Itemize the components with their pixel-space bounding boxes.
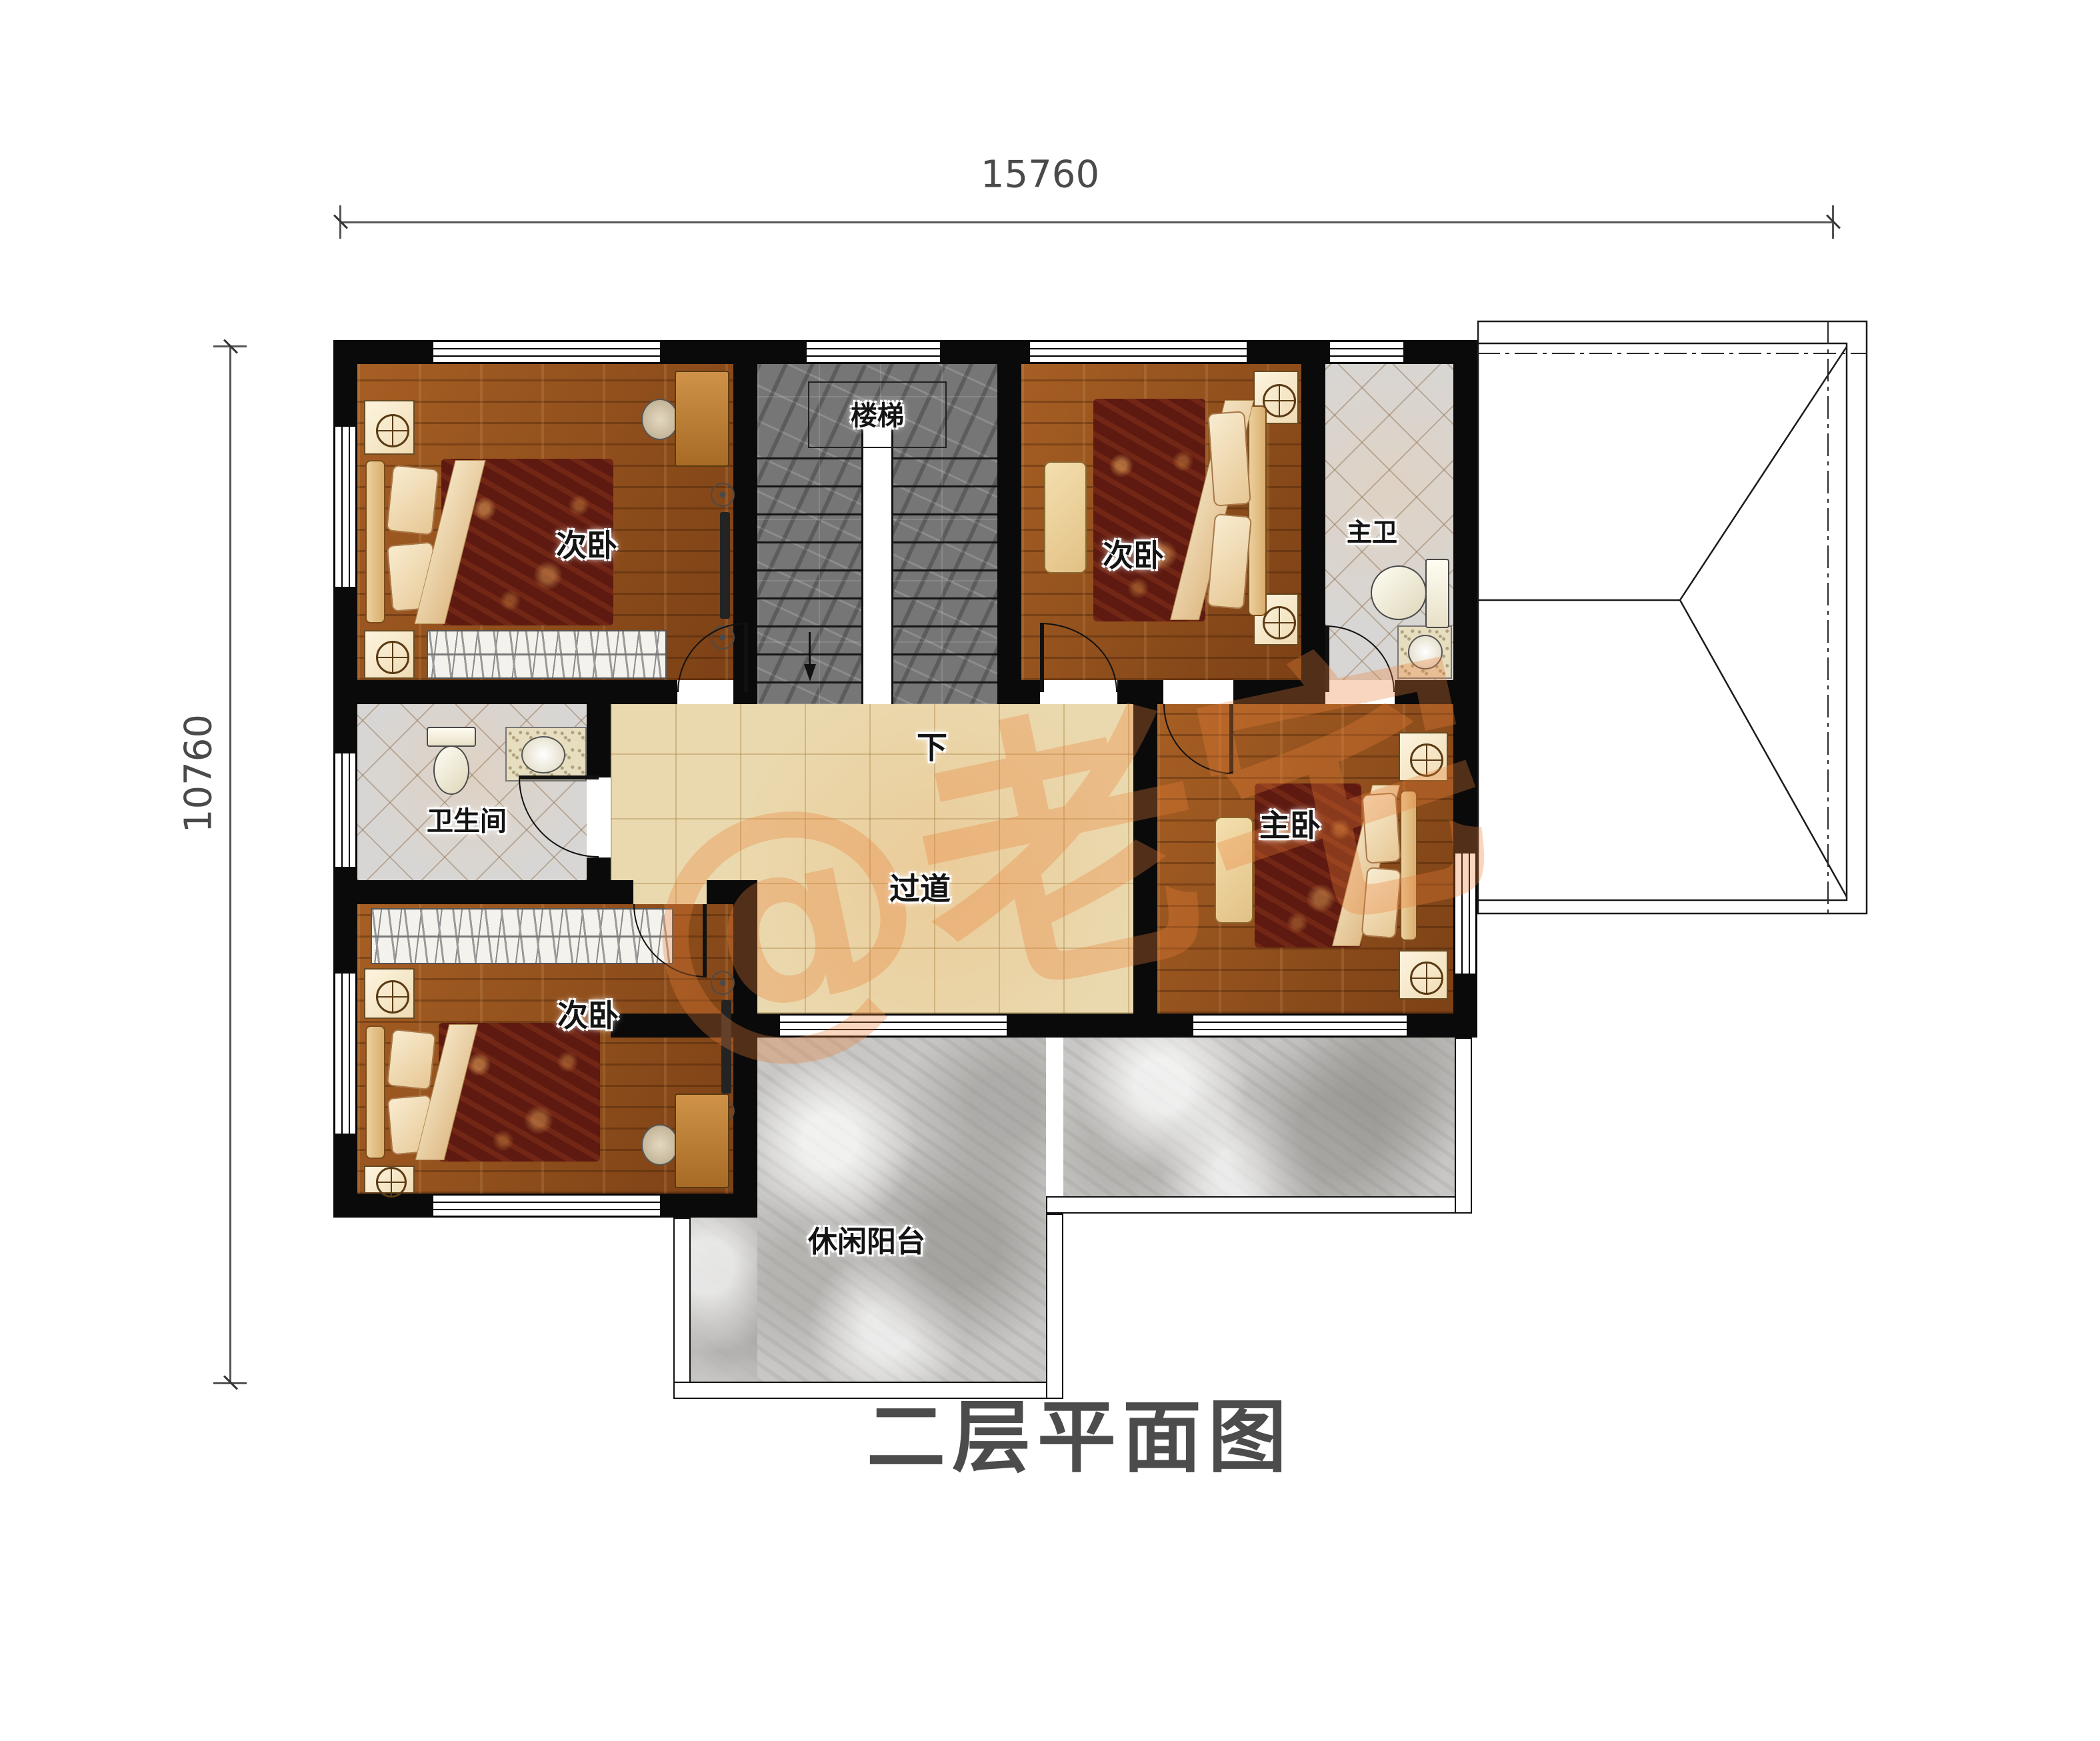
window [433, 1194, 660, 1218]
wardrobe [371, 908, 673, 964]
room-label-master-bath: 主卫 [1347, 512, 1397, 549]
window [333, 427, 357, 587]
floor-balcony-left [757, 1038, 1046, 1382]
door-leaf [519, 775, 599, 779]
chair [641, 399, 679, 440]
stair-down-arrow-tail [809, 632, 811, 664]
wall [333, 880, 633, 904]
sink [1408, 635, 1443, 669]
sink [521, 736, 565, 773]
bed-headboard [1248, 405, 1267, 616]
bedroom-bench [1044, 461, 1087, 573]
nightstand [1399, 732, 1448, 781]
wall [587, 704, 611, 777]
bed-pillow [387, 1029, 437, 1090]
speaker-knob [711, 971, 735, 995]
wall [997, 340, 1021, 704]
wall [707, 880, 757, 904]
door-leaf [1040, 623, 1044, 692]
room-label-bedroom-tm: 次卧 [1103, 531, 1164, 575]
door-leaf [744, 623, 748, 692]
speaker-knob [711, 483, 735, 507]
wall [333, 680, 677, 704]
desk [675, 371, 729, 467]
nightstand [364, 400, 415, 455]
room-label-bathroom: 卫生间 [427, 799, 507, 838]
door-leaf [703, 904, 707, 978]
garage-roof [1477, 313, 1877, 920]
bed-pillow [1361, 867, 1402, 939]
wall [1117, 680, 1163, 704]
bed-headboard [365, 1026, 385, 1159]
bed-pillow [1207, 411, 1251, 507]
window [780, 1014, 1007, 1038]
floor-plan-canvas: @老宅 次卧 楼梯 次卧 主卫 卫生间 下 过道 主卧 次卧 休闲阳台 1576… [0, 0, 2100, 1741]
stairs-down-label: 下 [917, 723, 947, 767]
window [1030, 340, 1247, 364]
toilet-bowl [433, 745, 469, 795]
dimension-value-top: 15760 [981, 153, 1099, 197]
bed-pillow [1361, 792, 1401, 863]
plan-title: 二层平面图 [867, 1374, 1293, 1488]
toilet-bowl [1371, 565, 1427, 620]
door-leaf [1229, 704, 1233, 774]
wardrobe [427, 630, 667, 679]
window [1330, 340, 1403, 364]
wall [1133, 704, 1157, 1038]
room-label-bedroom-bl: 次卧 [557, 992, 619, 1036]
room-label-balcony: 休闲阳台 [808, 1218, 925, 1260]
tv-panel [721, 1000, 731, 1094]
dimension-value-left: 10760 [177, 714, 221, 833]
room-label-master-bedroom: 主卧 [1259, 801, 1321, 845]
room-label-bedroom-tl: 次卧 [556, 521, 617, 565]
balcony-railing [673, 1218, 691, 1399]
nightstand [364, 630, 415, 679]
desk [675, 1094, 729, 1188]
chair [641, 1124, 679, 1166]
window [333, 974, 357, 1134]
window [1453, 853, 1477, 974]
bed-pillow [386, 465, 439, 536]
door-leaf [1325, 625, 1329, 692]
balcony-railing [1046, 1214, 1063, 1399]
stair-stringer [861, 427, 893, 704]
dimension-line-top [340, 221, 1833, 223]
wall [1395, 680, 1477, 704]
balcony-railing [1046, 1196, 1472, 1214]
balcony-railing [1455, 1038, 1472, 1214]
window [433, 340, 660, 364]
wall [733, 904, 757, 1218]
room-label-stairwell: 楼梯 [851, 394, 904, 433]
nightstand [364, 968, 415, 1019]
window [1193, 1014, 1407, 1038]
stair-down-arrow-icon [804, 664, 816, 681]
nightstand [364, 1166, 415, 1194]
tv-panel [720, 512, 730, 619]
nightstand [1399, 950, 1448, 1000]
window [807, 340, 940, 364]
room-label-corridor: 过道 [889, 865, 951, 909]
bed-headboard [365, 460, 385, 623]
floor-balcony-right [1063, 1038, 1455, 1196]
dimension-line-left [229, 346, 231, 1384]
bed-headboard [1400, 790, 1417, 941]
toilet-tank [427, 727, 476, 747]
window [333, 753, 357, 867]
wall [1301, 340, 1325, 704]
toilet-tank [1425, 559, 1449, 628]
floor-balcony-notch [691, 1218, 757, 1382]
bedroom-bench [1215, 817, 1253, 924]
